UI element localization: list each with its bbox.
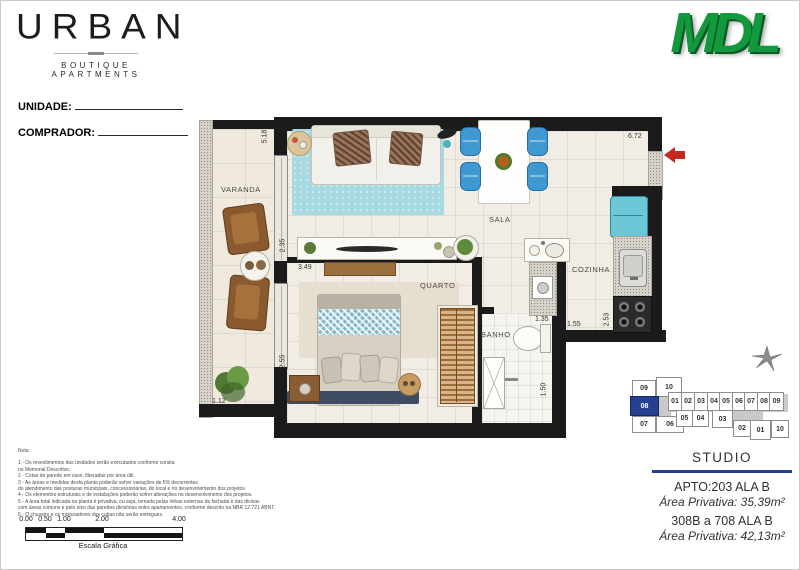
keyplan-unit: 05	[719, 392, 733, 411]
stool-deco	[410, 381, 415, 386]
wardrobe	[437, 305, 478, 407]
dining-chair	[527, 162, 548, 191]
fridge-door-line	[613, 215, 643, 216]
room-label-varanda: VARANDA	[221, 185, 261, 194]
dim-1-55: 1.55	[567, 321, 581, 328]
entrance-arrow-shaft	[675, 151, 685, 159]
room-label-cozinha: COZINHA	[572, 265, 610, 274]
dining-table	[478, 120, 530, 204]
console-plant	[304, 242, 316, 254]
comprador-blank-line	[98, 126, 188, 136]
stove-burner	[634, 316, 646, 328]
wall-varanda-bottom	[199, 404, 281, 417]
unit-type-title: STUDIO	[648, 450, 796, 465]
kitchen-counter	[613, 236, 652, 299]
armchair-cushion	[234, 284, 261, 320]
armchair-cushion	[230, 211, 260, 244]
stove-burner	[618, 316, 630, 328]
comprador-label: COMPRADOR:	[18, 127, 95, 139]
sofa	[311, 125, 441, 185]
scale-caption: Escala Gráfica	[79, 541, 128, 550]
keyplan-unit: 02	[733, 420, 751, 437]
dining-chair	[460, 127, 481, 156]
keyplan-unit: 01	[750, 420, 771, 440]
sink-deco	[529, 245, 540, 256]
scale-segment	[65, 528, 104, 533]
sofa-seam	[376, 138, 377, 181]
keyplan-unit: 09	[769, 392, 784, 411]
cup	[245, 261, 254, 270]
bed	[317, 294, 401, 406]
dim-1-50: 1.50	[540, 383, 547, 397]
fridge	[610, 196, 648, 238]
floor-lamp-base	[443, 140, 451, 148]
keyplan-unit: 03	[712, 410, 733, 428]
area-line: Área Privativa: 35,39m²	[648, 495, 796, 509]
shower-head	[505, 378, 518, 381]
sala-plant-pot	[453, 235, 479, 261]
quarto-dresser	[324, 262, 396, 276]
dim-3-49: 3.49	[298, 264, 312, 271]
stove	[613, 296, 652, 333]
urban-logo-divider	[54, 52, 138, 55]
varanda-armchair-2	[226, 274, 271, 331]
toilet-tank	[540, 324, 551, 353]
range-area-line: Área Privativa: 42,13m²	[648, 529, 796, 543]
faucet	[630, 277, 638, 280]
nightstand-lamp	[299, 383, 311, 395]
plant-foliage	[457, 239, 473, 255]
dim-2-55: 2.55	[279, 355, 286, 369]
wall-divider-upper	[274, 117, 287, 155]
stove-burner	[634, 301, 646, 313]
scale-label: 4.00	[172, 516, 186, 523]
scale-label: 0.00	[19, 516, 33, 523]
unidade-label: UNIDADE:	[18, 101, 72, 113]
keyplan-unit: 07	[744, 392, 758, 411]
scale-label: 0.50	[38, 516, 52, 523]
keyplan-unit-highlighted: 08	[630, 396, 659, 416]
stove-burner	[618, 301, 630, 313]
varanda-armchair-1	[222, 202, 270, 255]
tv-console	[297, 237, 457, 260]
nightstand	[289, 375, 320, 402]
bed-pillow	[378, 356, 400, 384]
cup	[256, 260, 266, 270]
toilet-bowl	[513, 326, 543, 351]
sofa-pillow	[389, 131, 424, 167]
flower	[299, 141, 307, 149]
keyplan-unit: 02	[681, 392, 695, 411]
dim-2-53: 2.53	[603, 313, 610, 327]
bedside-stool	[398, 373, 421, 396]
scale-label: 2.00	[95, 516, 109, 523]
info-divider	[652, 470, 792, 473]
varanda-railing	[199, 120, 213, 418]
wall-right-upper	[648, 117, 662, 151]
tv	[336, 246, 398, 252]
entrance-arrow-icon	[664, 147, 675, 163]
room-label-sala: SALA	[489, 215, 511, 224]
scale-segment	[26, 528, 46, 533]
urban-logo: URBAN BOUTIQUE APARTMENTS	[16, 6, 176, 79]
sala-side-table	[287, 131, 312, 156]
dining-chair	[460, 162, 481, 191]
bed-foot-band	[318, 295, 400, 309]
room-label-quarto: QUARTO	[420, 281, 455, 290]
keyplan-unit: 09	[632, 380, 656, 397]
keyplan-unit: 10	[771, 420, 789, 438]
mdl-developer-logo: MDL	[648, 0, 798, 66]
north-arrow-icon	[748, 344, 786, 374]
wall-divider-mid	[274, 261, 287, 283]
dim-2-35: 2.35	[279, 239, 286, 253]
table-centerpiece	[495, 153, 512, 170]
wall-varanda-top	[202, 120, 280, 129]
keyplan-unit: 05	[676, 410, 693, 427]
keyplan-unit: 03	[694, 392, 708, 411]
bathroom-sink-counter	[524, 238, 570, 262]
wardrobe-doors	[440, 308, 475, 404]
room-label-banho: BANHO	[481, 330, 511, 339]
wardrobe-divider	[456, 308, 457, 402]
cabinet-fixture	[537, 282, 549, 294]
bed-blanket	[318, 309, 400, 335]
dining-chair	[527, 127, 548, 156]
dim-6-72: 6.72	[628, 133, 642, 140]
divider-accent	[88, 52, 104, 55]
scale-segment	[46, 533, 66, 538]
dim-1-12: 1.12	[212, 398, 226, 405]
flower	[292, 137, 298, 143]
urban-logo-text: URBAN	[16, 7, 176, 47]
unit-info-panel: STUDIO APTO:203 ALA B Área Privativa: 35…	[648, 450, 796, 543]
keyplan-unit: 04	[692, 410, 709, 427]
keyplan-unit: 01	[668, 392, 682, 411]
sink-bowl	[545, 243, 564, 258]
range-line: 308B a 708 ALA B	[648, 514, 796, 528]
wall-divider-lower	[274, 367, 287, 423]
urban-logo-subtitle: BOUTIQUE APARTMENTS	[16, 61, 176, 79]
faucet	[541, 241, 545, 245]
notes-title: Nota:	[18, 448, 328, 454]
dim-1-35: 1.35	[535, 316, 549, 323]
scale-label: 1.00	[57, 516, 71, 523]
wall-bottom	[274, 423, 566, 438]
scale-segment	[104, 533, 182, 538]
sink-basin	[623, 255, 643, 277]
console-deco	[434, 242, 442, 250]
unidade-field: UNIDADE:	[18, 100, 183, 113]
sofa-pillow	[332, 129, 371, 167]
comprador-field: COMPRADOR:	[18, 126, 188, 139]
bathroom-cabinet	[532, 276, 553, 299]
dim-5-18: 5.18	[261, 130, 268, 144]
apto-line: APTO:203 ALA B	[648, 480, 796, 494]
varanda-side-table	[240, 251, 270, 281]
shower-box	[483, 357, 505, 409]
unidade-blank-line	[75, 100, 183, 110]
graphic-scale-bar	[25, 527, 183, 541]
kitchen-sink	[619, 249, 647, 287]
keyplan-unit: 07	[632, 416, 656, 433]
stool-deco	[403, 381, 408, 386]
notes-block: Nota: 1 - Os revestimentos das unidades …	[18, 448, 328, 518]
